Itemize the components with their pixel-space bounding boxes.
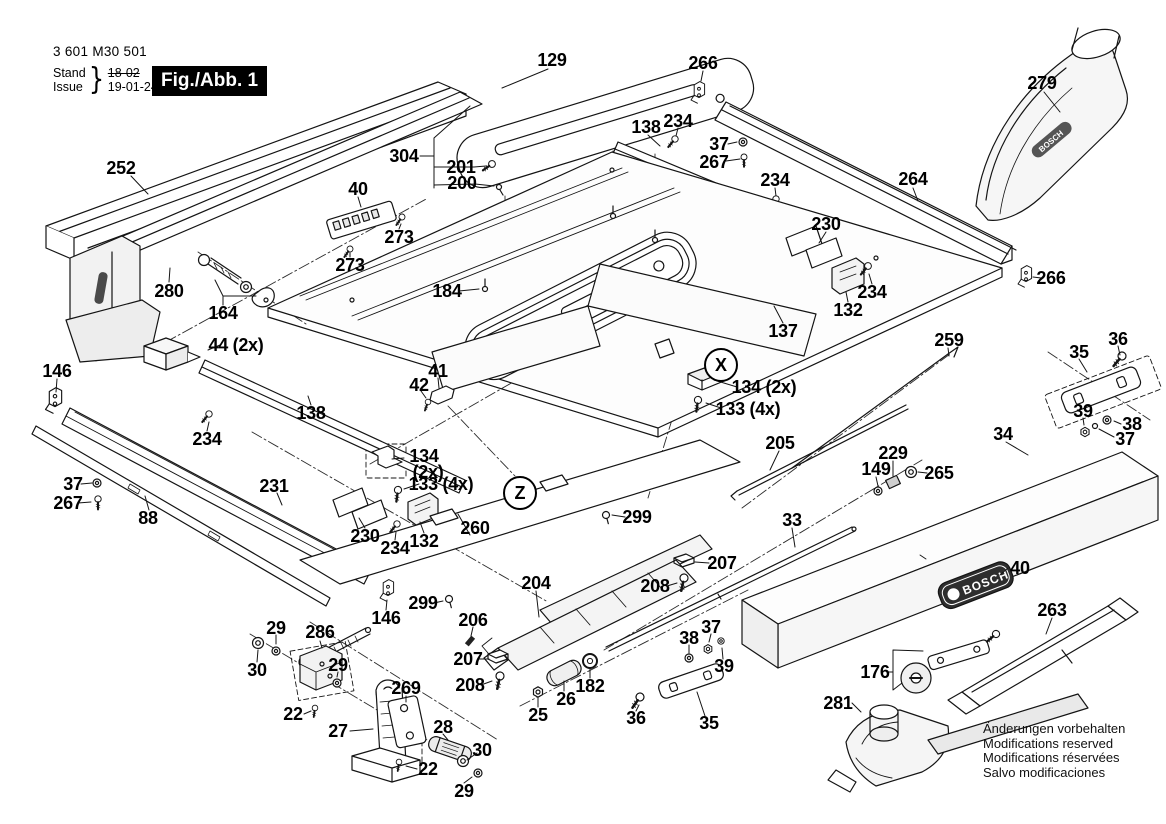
part-label-133-4x-: 133 (4x): [716, 400, 781, 418]
part-label-26: 26: [556, 690, 575, 708]
part-label-264: 264: [898, 170, 927, 188]
part-label-22: 22: [418, 760, 437, 778]
labels-layer: 1292662792523042012004013823437267234264…: [0, 0, 1166, 824]
part-label-33: 33: [782, 511, 801, 529]
part-label-39: 39: [714, 657, 733, 675]
part-label-42: 42: [409, 376, 428, 394]
part-label-37: 37: [63, 475, 82, 493]
detail-marker-z: Z: [503, 476, 537, 510]
part-label-279: 279: [1027, 74, 1056, 92]
part-label-273: 273: [335, 256, 364, 274]
part-label-234: 234: [857, 283, 886, 301]
part-label-129: 129: [537, 51, 566, 69]
part-label-280: 280: [154, 282, 183, 300]
part-label-35: 35: [1069, 343, 1088, 361]
part-label-267: 267: [53, 494, 82, 512]
part-label-234: 234: [760, 171, 789, 189]
part-label-267: 267: [699, 153, 728, 171]
footer-note-line: Modifications réservées: [983, 751, 1125, 766]
title-block: 3 601 M30 501 Stand Issue } 18-02 19-01-…: [53, 44, 158, 94]
stand-value: 18-02: [108, 66, 158, 80]
footer-notes: Änderungen vorbehaltenModifications rese…: [983, 722, 1125, 780]
part-label-208: 208: [640, 577, 669, 595]
part-label-265: 265: [924, 464, 953, 482]
part-label-37: 37: [701, 618, 720, 636]
part-label-146: 146: [371, 609, 400, 627]
part-label-133-4x-: 133 (4x): [409, 475, 474, 493]
part-label-200: 200: [447, 174, 476, 192]
part-label-36: 36: [1108, 330, 1127, 348]
catalog-number: 3 601 M30 501: [53, 44, 158, 59]
part-label-260: 260: [460, 519, 489, 537]
part-label-25: 25: [528, 706, 547, 724]
part-label-29: 29: [454, 782, 473, 800]
part-label-205: 205: [765, 434, 794, 452]
part-label-149: 149: [861, 460, 890, 478]
part-label-134-2x-: 134 (2x): [732, 378, 797, 396]
part-label-207: 207: [707, 554, 736, 572]
part-label-299: 299: [408, 594, 437, 612]
part-label-28: 28: [433, 718, 452, 736]
part-label-263: 263: [1037, 601, 1066, 619]
part-label-29: 29: [266, 619, 285, 637]
part-label-281: 281: [823, 694, 852, 712]
part-label-40: 40: [348, 180, 367, 198]
stand-label: Stand: [53, 66, 86, 80]
part-label-266: 266: [1036, 269, 1065, 287]
part-label-29: 29: [328, 656, 347, 674]
part-label-44-2x-: 44 (2x): [209, 336, 264, 354]
part-label-286: 286: [305, 623, 334, 641]
brace-glyph: }: [89, 66, 104, 94]
part-label-266: 266: [688, 54, 717, 72]
part-label-40: 40: [1010, 559, 1029, 577]
footer-note-line: Salvo modificaciones: [983, 766, 1125, 781]
part-label-176: 176: [860, 663, 889, 681]
part-label-132: 132: [409, 532, 438, 550]
part-label-207: 207: [453, 650, 482, 668]
part-label-184: 184: [432, 282, 461, 300]
part-label-164: 164: [208, 304, 237, 322]
part-label-132: 132: [833, 301, 862, 319]
part-label-88: 88: [138, 509, 157, 527]
part-label-231: 231: [259, 477, 288, 495]
part-label-36: 36: [626, 709, 645, 727]
detail-marker-x: X: [704, 348, 738, 382]
part-label-234: 234: [663, 112, 692, 130]
part-label-41: 41: [428, 362, 447, 380]
part-label-137: 137: [768, 322, 797, 340]
part-label-299: 299: [622, 508, 651, 526]
part-label-37: 37: [709, 135, 728, 153]
part-label-252: 252: [106, 159, 135, 177]
part-label-146: 146: [42, 362, 71, 380]
footer-note-line: Änderungen vorbehalten: [983, 722, 1125, 737]
part-label-230: 230: [811, 215, 840, 233]
part-label-34: 34: [993, 425, 1012, 443]
part-label-208: 208: [455, 676, 484, 694]
part-label-304: 304: [389, 147, 418, 165]
issue-value: 19-01-24: [108, 80, 158, 94]
part-label-234: 234: [380, 539, 409, 557]
parts-diagram-page: BOSCH: [0, 0, 1166, 824]
issue-label: Issue: [53, 80, 86, 94]
part-label-30: 30: [472, 741, 491, 759]
part-label-39: 39: [1073, 402, 1092, 420]
part-label-206: 206: [458, 611, 487, 629]
part-label-35: 35: [699, 714, 718, 732]
part-label-27: 27: [328, 722, 347, 740]
part-label-230: 230: [350, 527, 379, 545]
part-label-234: 234: [192, 430, 221, 448]
part-label-37: 37: [1115, 430, 1134, 448]
part-label-138: 138: [631, 118, 660, 136]
part-label-138: 138: [296, 404, 325, 422]
part-label-204: 204: [521, 574, 550, 592]
part-label-30: 30: [247, 661, 266, 679]
part-label-38: 38: [679, 629, 698, 647]
part-label-259: 259: [934, 331, 963, 349]
part-label-182: 182: [575, 677, 604, 695]
part-label-273: 273: [384, 228, 413, 246]
part-label-269: 269: [391, 679, 420, 697]
figure-number-badge: Fig./Abb. 1: [152, 66, 267, 96]
footer-note-line: Modifications reserved: [983, 737, 1125, 752]
part-label-22: 22: [283, 705, 302, 723]
